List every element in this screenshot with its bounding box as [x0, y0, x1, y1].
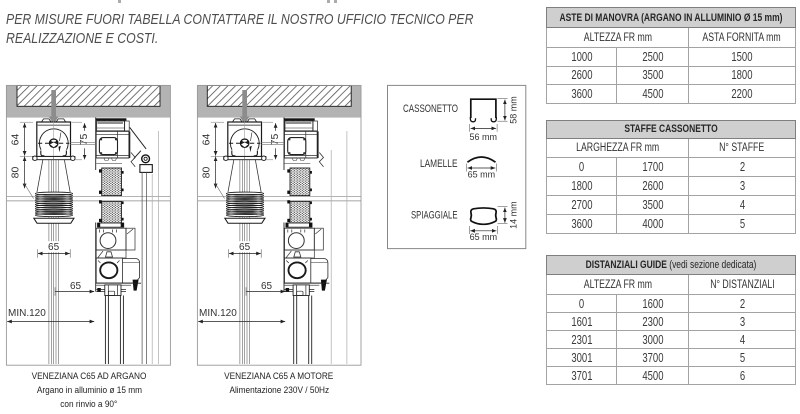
svg-text:CASSONETTO: CASSONETTO: [403, 103, 458, 115]
svg-text:58 mm: 58 mm: [509, 96, 519, 124]
svg-text:14 mm: 14 mm: [509, 201, 519, 229]
svg-text:65 mm: 65 mm: [470, 232, 498, 242]
svg-text:65 mm: 65 mm: [468, 169, 496, 179]
svg-text:LAMELLE: LAMELLE: [420, 158, 458, 170]
svg-text:56 mm: 56 mm: [470, 132, 498, 142]
svg-text:SPIAGGIALE: SPIAGGIALE: [411, 210, 458, 222]
